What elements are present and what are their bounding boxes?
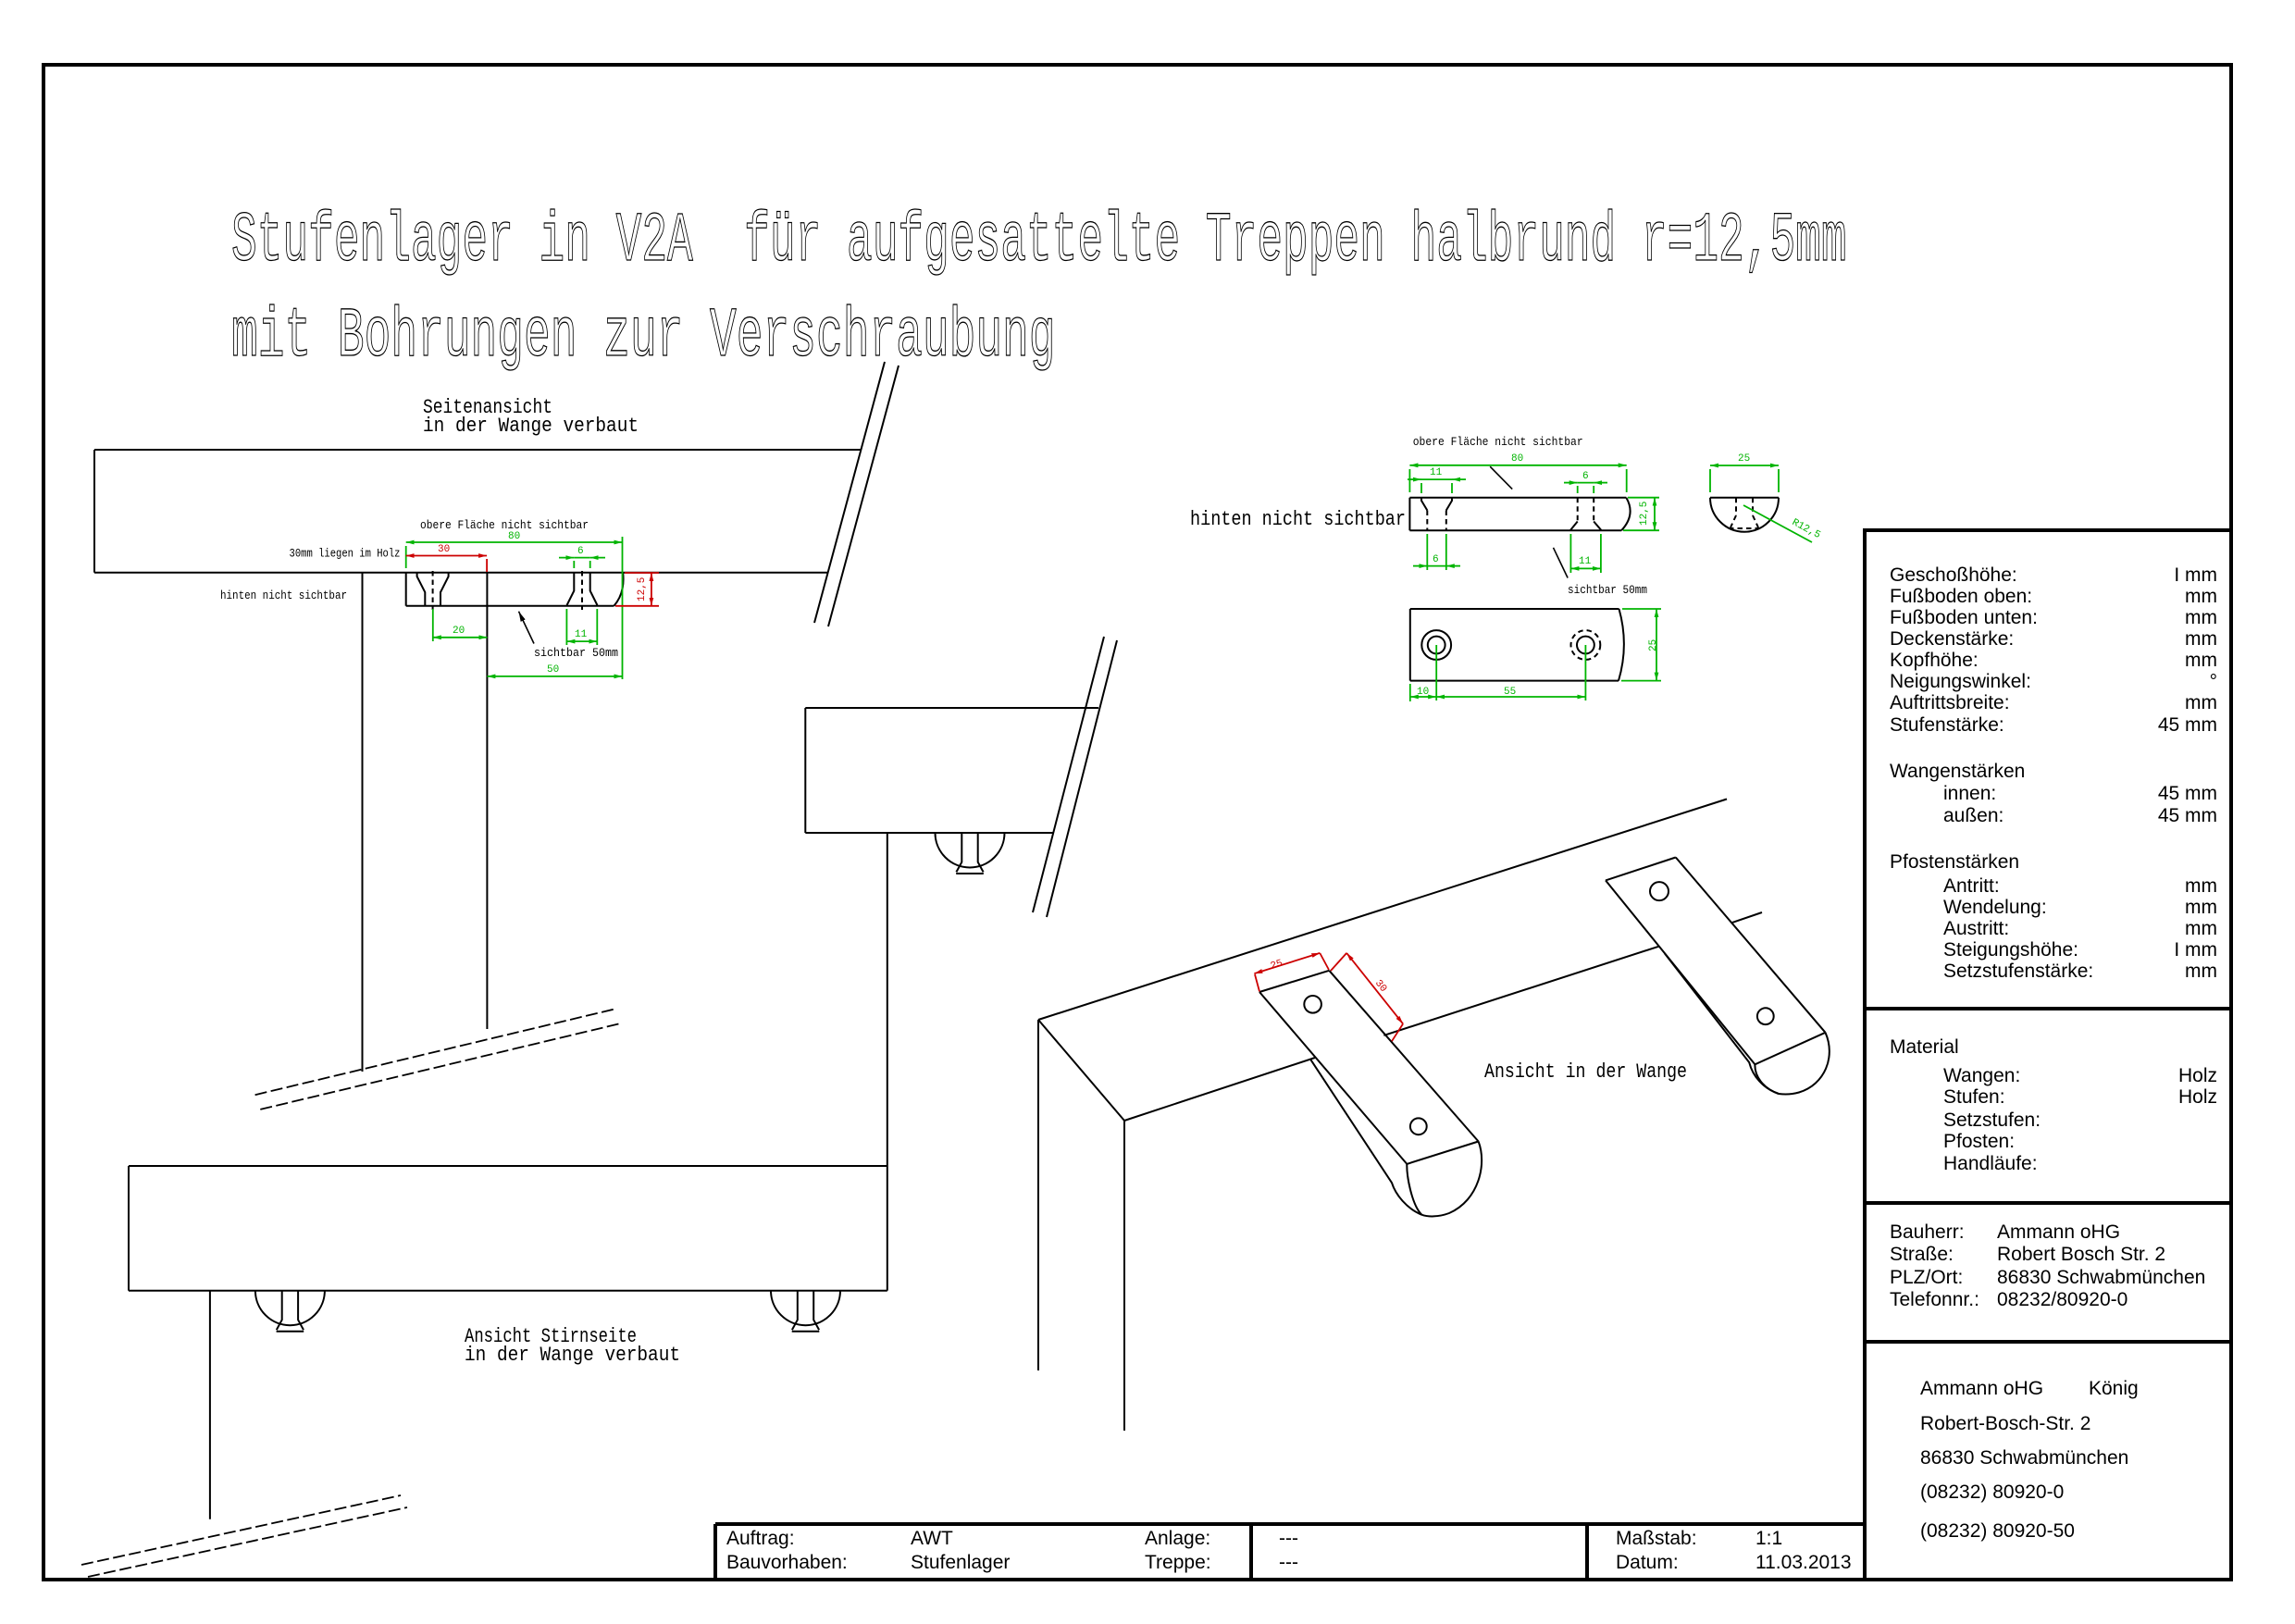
svg-text:Pfostenstärken: Pfostenstärken — [1890, 851, 2019, 873]
svg-text:Auftrittsbreite:: Auftrittsbreite: — [1890, 692, 2010, 713]
svg-text:Wangenstärken: Wangenstärken — [1890, 761, 2025, 782]
svg-text:Bauvorhaben:: Bauvorhaben: — [726, 1552, 848, 1573]
svg-text:mit Bohrungen zur Verschraubun: mit Bohrungen zur Verschraubung — [231, 298, 1055, 378]
svg-text:Pfosten:: Pfosten: — [1943, 1131, 2015, 1152]
svg-text:(08232) 80920-50: (08232) 80920-50 — [1920, 1520, 2075, 1542]
svg-text:6: 6 — [1433, 554, 1439, 565]
svg-text:Ammann oHG: Ammann oHG — [1920, 1378, 2043, 1399]
svg-text:I mm: I mm — [2174, 564, 2217, 586]
svg-text:Material: Material — [1890, 1036, 1959, 1058]
svg-text:Stufenlager: Stufenlager — [911, 1552, 1010, 1573]
svg-text:86830 Schwabmünchen: 86830 Schwabmünchen — [1997, 1267, 2205, 1288]
svg-text:Stufenstärke:: Stufenstärke: — [1890, 714, 2004, 736]
svg-text:12,5: 12,5 — [637, 577, 648, 601]
svg-text:Steigungshöhe:: Steigungshöhe: — [1943, 939, 2078, 961]
svg-text:6: 6 — [1582, 471, 1589, 482]
svg-text:Antritt:: Antritt: — [1943, 875, 2000, 897]
svg-text:Straße:: Straße: — [1890, 1244, 1954, 1265]
svg-text:20: 20 — [453, 626, 465, 637]
svg-text:obere Fläche nicht sichtbar: obere Fläche nicht sichtbar — [1413, 435, 1583, 449]
svg-text:AWT: AWT — [911, 1528, 953, 1549]
svg-text:Wangen:: Wangen: — [1943, 1065, 2020, 1086]
svg-text:---: --- — [1279, 1528, 1298, 1549]
svg-text:11: 11 — [1579, 556, 1592, 567]
svg-text:Geschoßhöhe:: Geschoßhöhe: — [1890, 564, 2017, 586]
svg-text:45 mm: 45 mm — [2158, 805, 2217, 826]
svg-text:Setzstufenstärke:: Setzstufenstärke: — [1943, 961, 2093, 982]
svg-text:Stufen:: Stufen: — [1943, 1086, 2005, 1108]
svg-text:Bauherr:: Bauherr: — [1890, 1221, 1965, 1243]
svg-text:Holz: Holz — [2178, 1086, 2217, 1108]
svg-text:Telefonnr.:: Telefonnr.: — [1890, 1289, 1979, 1310]
svg-text:König: König — [2089, 1378, 2139, 1399]
svg-text:mm: mm — [2185, 897, 2217, 918]
svg-text:1:1: 1:1 — [1755, 1528, 1782, 1549]
svg-text:in der Wange verbaut: in der Wange verbaut — [465, 1344, 680, 1367]
svg-text:45 mm: 45 mm — [2158, 714, 2217, 736]
svg-text:Auftrag:: Auftrag: — [726, 1528, 795, 1549]
svg-text:mm: mm — [2185, 961, 2217, 982]
svg-text:Fußboden oben:: Fußboden oben: — [1890, 586, 2032, 607]
svg-text:Anlage:: Anlage: — [1145, 1528, 1210, 1549]
svg-text:Austritt:: Austritt: — [1943, 918, 2009, 939]
svg-text:55: 55 — [1504, 687, 1516, 698]
svg-text:mm: mm — [2185, 692, 2217, 713]
svg-text:6: 6 — [577, 546, 584, 557]
svg-text:(08232) 80920-0: (08232) 80920-0 — [1920, 1481, 2064, 1503]
svg-text:sichtbar 50mm: sichtbar 50mm — [534, 646, 618, 660]
svg-text:Setzstufen:: Setzstufen: — [1943, 1110, 2041, 1131]
svg-text:mm: mm — [2185, 628, 2217, 650]
svg-text:mm: mm — [2185, 875, 2217, 897]
svg-text:---: --- — [1279, 1552, 1298, 1573]
svg-text:Wendelung:: Wendelung: — [1943, 897, 2047, 918]
svg-text:Ammann oHG: Ammann oHG — [1997, 1221, 2120, 1243]
svg-text:25: 25 — [1648, 639, 1659, 651]
svg-text:Stufenlager in V2A für aufges: Stufenlager in V2A für aufgesattelte Tre… — [231, 202, 1847, 281]
svg-text:in der Wange verbaut: in der Wange verbaut — [423, 415, 639, 438]
svg-text:Robert-Bosch-Str. 2: Robert-Bosch-Str. 2 — [1920, 1413, 2090, 1434]
svg-text:Fußboden unten:: Fußboden unten: — [1890, 607, 2038, 628]
svg-text:30: 30 — [438, 544, 450, 555]
svg-text:08232/80920-0: 08232/80920-0 — [1997, 1289, 2128, 1310]
svg-text:Ansicht in der Wange: Ansicht in der Wange — [1484, 1060, 1687, 1084]
svg-text:mm: mm — [2185, 650, 2217, 671]
svg-text:86830 Schwabmünchen: 86830 Schwabmünchen — [1920, 1447, 2128, 1469]
svg-text:11.03.2013: 11.03.2013 — [1755, 1552, 1852, 1573]
svg-text:45 mm: 45 mm — [2158, 783, 2217, 804]
svg-text:hinten nicht sichtbar: hinten nicht sichtbar — [1190, 508, 1406, 531]
svg-text:10: 10 — [1417, 687, 1429, 698]
svg-text:25: 25 — [1270, 958, 1284, 972]
svg-text:Kopfhöhe:: Kopfhöhe: — [1890, 650, 1979, 671]
svg-text:sichtbar 50mm: sichtbar 50mm — [1568, 583, 1647, 597]
svg-text:Treppe:: Treppe: — [1145, 1552, 1211, 1573]
svg-text:50: 50 — [547, 664, 559, 676]
svg-text:R12,5: R12,5 — [1790, 517, 1822, 541]
svg-text:I mm: I mm — [2174, 939, 2217, 961]
svg-text:°: ° — [2210, 671, 2217, 692]
svg-text:30: 30 — [1372, 978, 1389, 995]
svg-text:Neigungswinkel:: Neigungswinkel: — [1890, 671, 2031, 692]
svg-text:12,5: 12,5 — [1639, 502, 1650, 526]
svg-text:PLZ/Ort:: PLZ/Ort: — [1890, 1267, 1963, 1288]
svg-text:innen:: innen: — [1943, 783, 1996, 804]
svg-text:Handläufe:: Handläufe: — [1943, 1153, 2038, 1174]
svg-text:Maßstab:: Maßstab: — [1616, 1528, 1697, 1549]
svg-text:30mm liegen im Holz: 30mm liegen im Holz — [290, 547, 401, 561]
svg-text:80: 80 — [1511, 453, 1523, 465]
svg-text:11: 11 — [1430, 467, 1443, 478]
svg-text:Datum:: Datum: — [1616, 1552, 1679, 1573]
svg-text:mm: mm — [2185, 586, 2217, 607]
svg-text:Holz: Holz — [2178, 1065, 2217, 1086]
svg-text:Deckenstärke:: Deckenstärke: — [1890, 628, 2014, 650]
svg-text:obere Fläche nicht sichtbar: obere Fläche nicht sichtbar — [420, 518, 589, 532]
svg-text:hinten nicht sichtbar: hinten nicht sichtbar — [220, 589, 347, 602]
svg-text:mm: mm — [2185, 918, 2217, 939]
svg-text:mm: mm — [2185, 607, 2217, 628]
svg-text:außen:: außen: — [1943, 805, 2003, 826]
svg-text:25: 25 — [1738, 453, 1750, 465]
svg-text:80: 80 — [508, 531, 520, 542]
svg-text:Robert Bosch Str. 2: Robert Bosch Str. 2 — [1997, 1244, 2165, 1265]
svg-text:11: 11 — [575, 629, 588, 640]
